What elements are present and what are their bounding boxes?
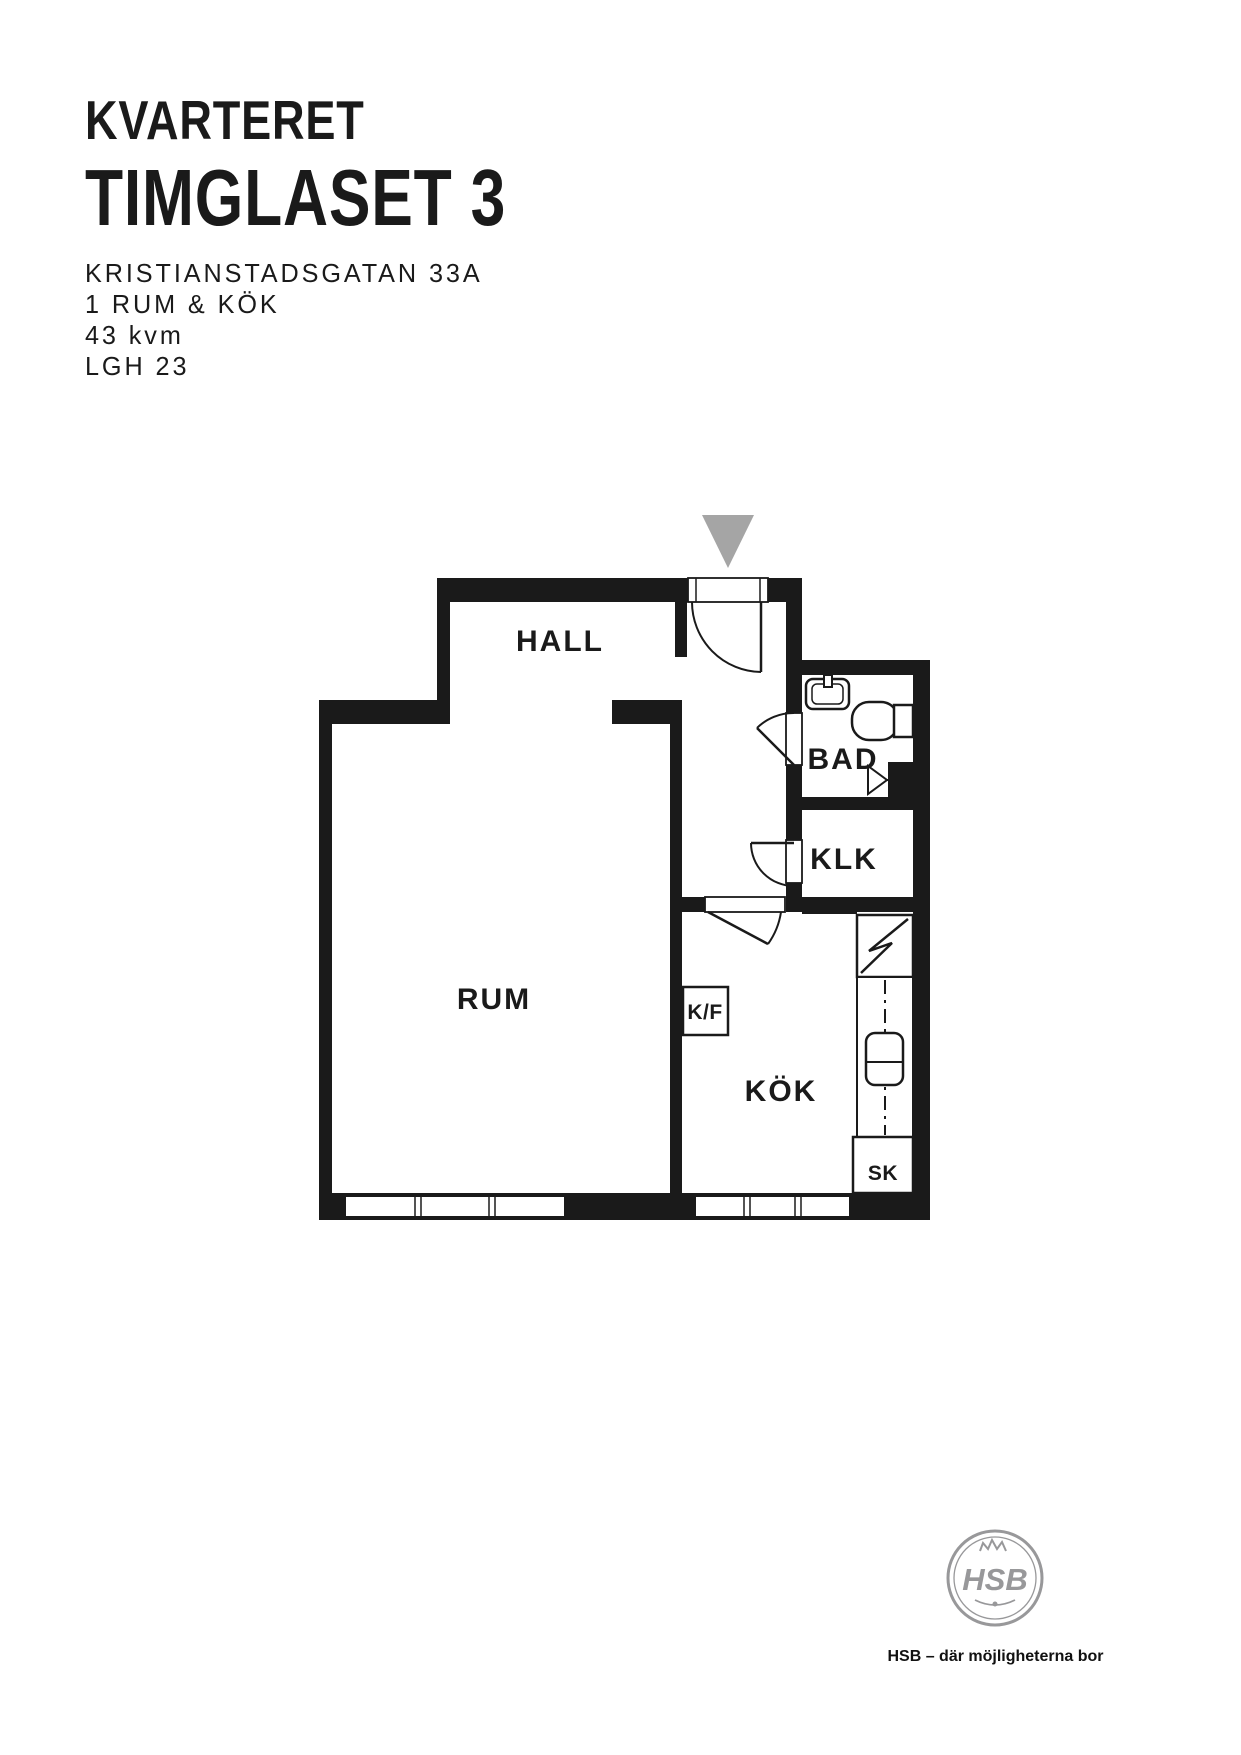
logo-crown-icon xyxy=(980,1540,1006,1551)
logo-hsb-text: HSB xyxy=(962,1562,1027,1597)
hsb-tagline: HSB – där möjligheterna bor xyxy=(868,1648,1123,1666)
hsb-logo: HSB xyxy=(0,0,1241,1755)
